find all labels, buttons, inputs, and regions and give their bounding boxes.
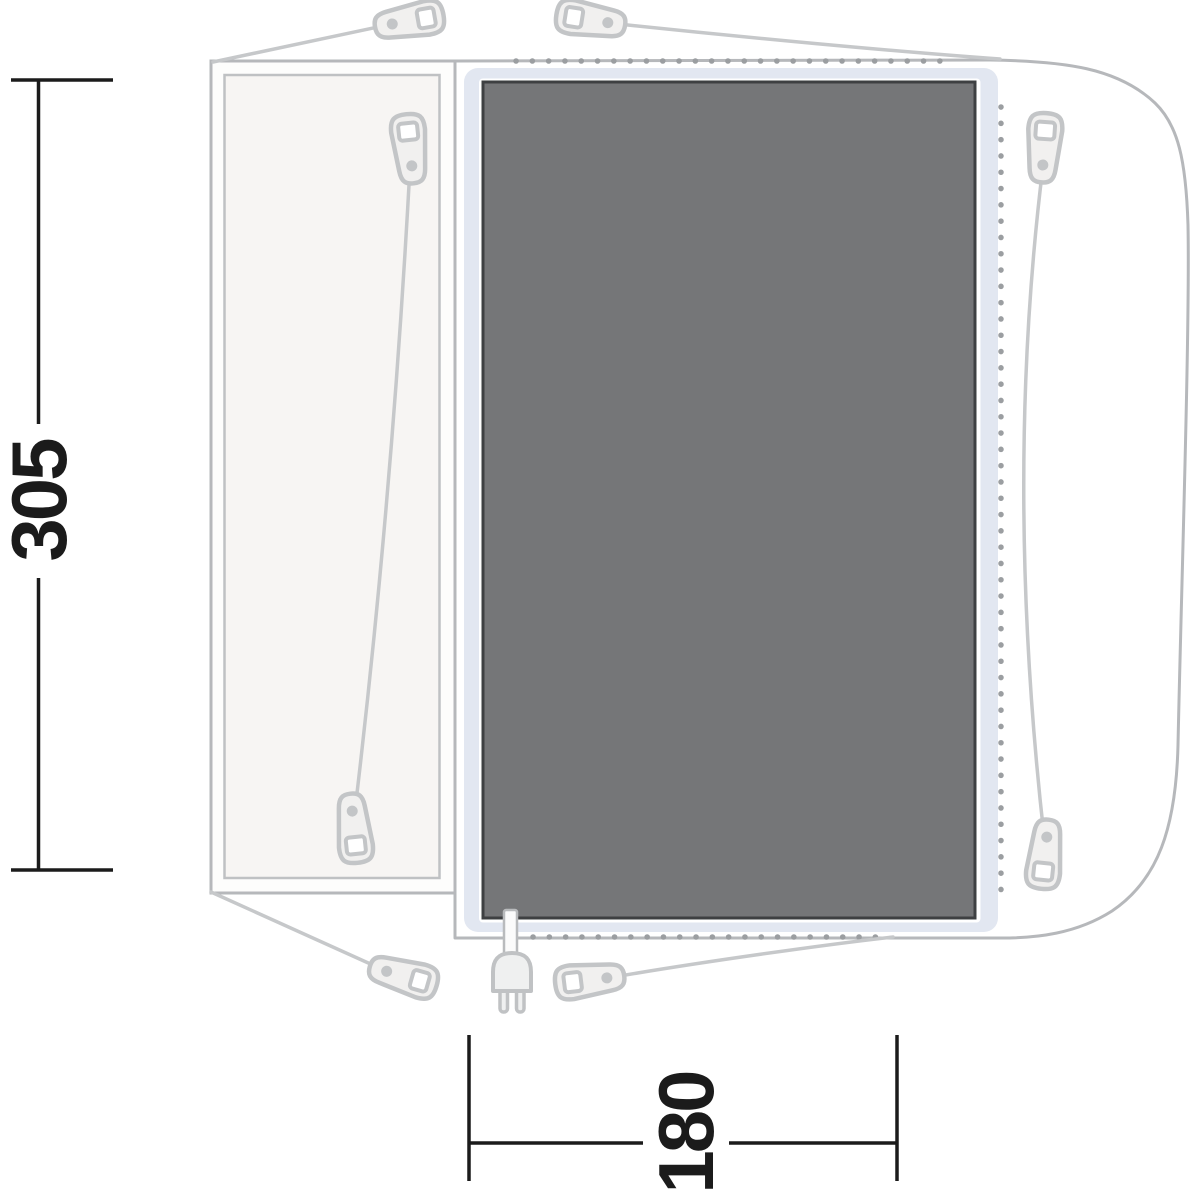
groundsheet bbox=[483, 82, 975, 918]
floorplan-diagram: 305 180 bbox=[0, 0, 1200, 1200]
peg-icon-bottom-left bbox=[365, 950, 441, 1002]
dimension-depth-label: 305 bbox=[0, 391, 84, 611]
guy-rope-top-right bbox=[609, 23, 1000, 59]
tent-floorplan-drawing bbox=[0, 0, 1200, 1200]
guy-rope-bottom-center bbox=[608, 937, 893, 978]
guy-rope-bottom-left bbox=[211, 892, 386, 971]
plug-cable bbox=[504, 910, 517, 958]
dimension-width-label: 180 bbox=[641, 1023, 731, 1200]
peg-icon-top-left bbox=[372, 0, 446, 44]
plug-head bbox=[493, 953, 531, 991]
peg-icon-top-right bbox=[554, 0, 628, 42]
peg-icon-bottom-center bbox=[553, 959, 626, 1001]
guy-rope-top-left bbox=[213, 24, 392, 62]
